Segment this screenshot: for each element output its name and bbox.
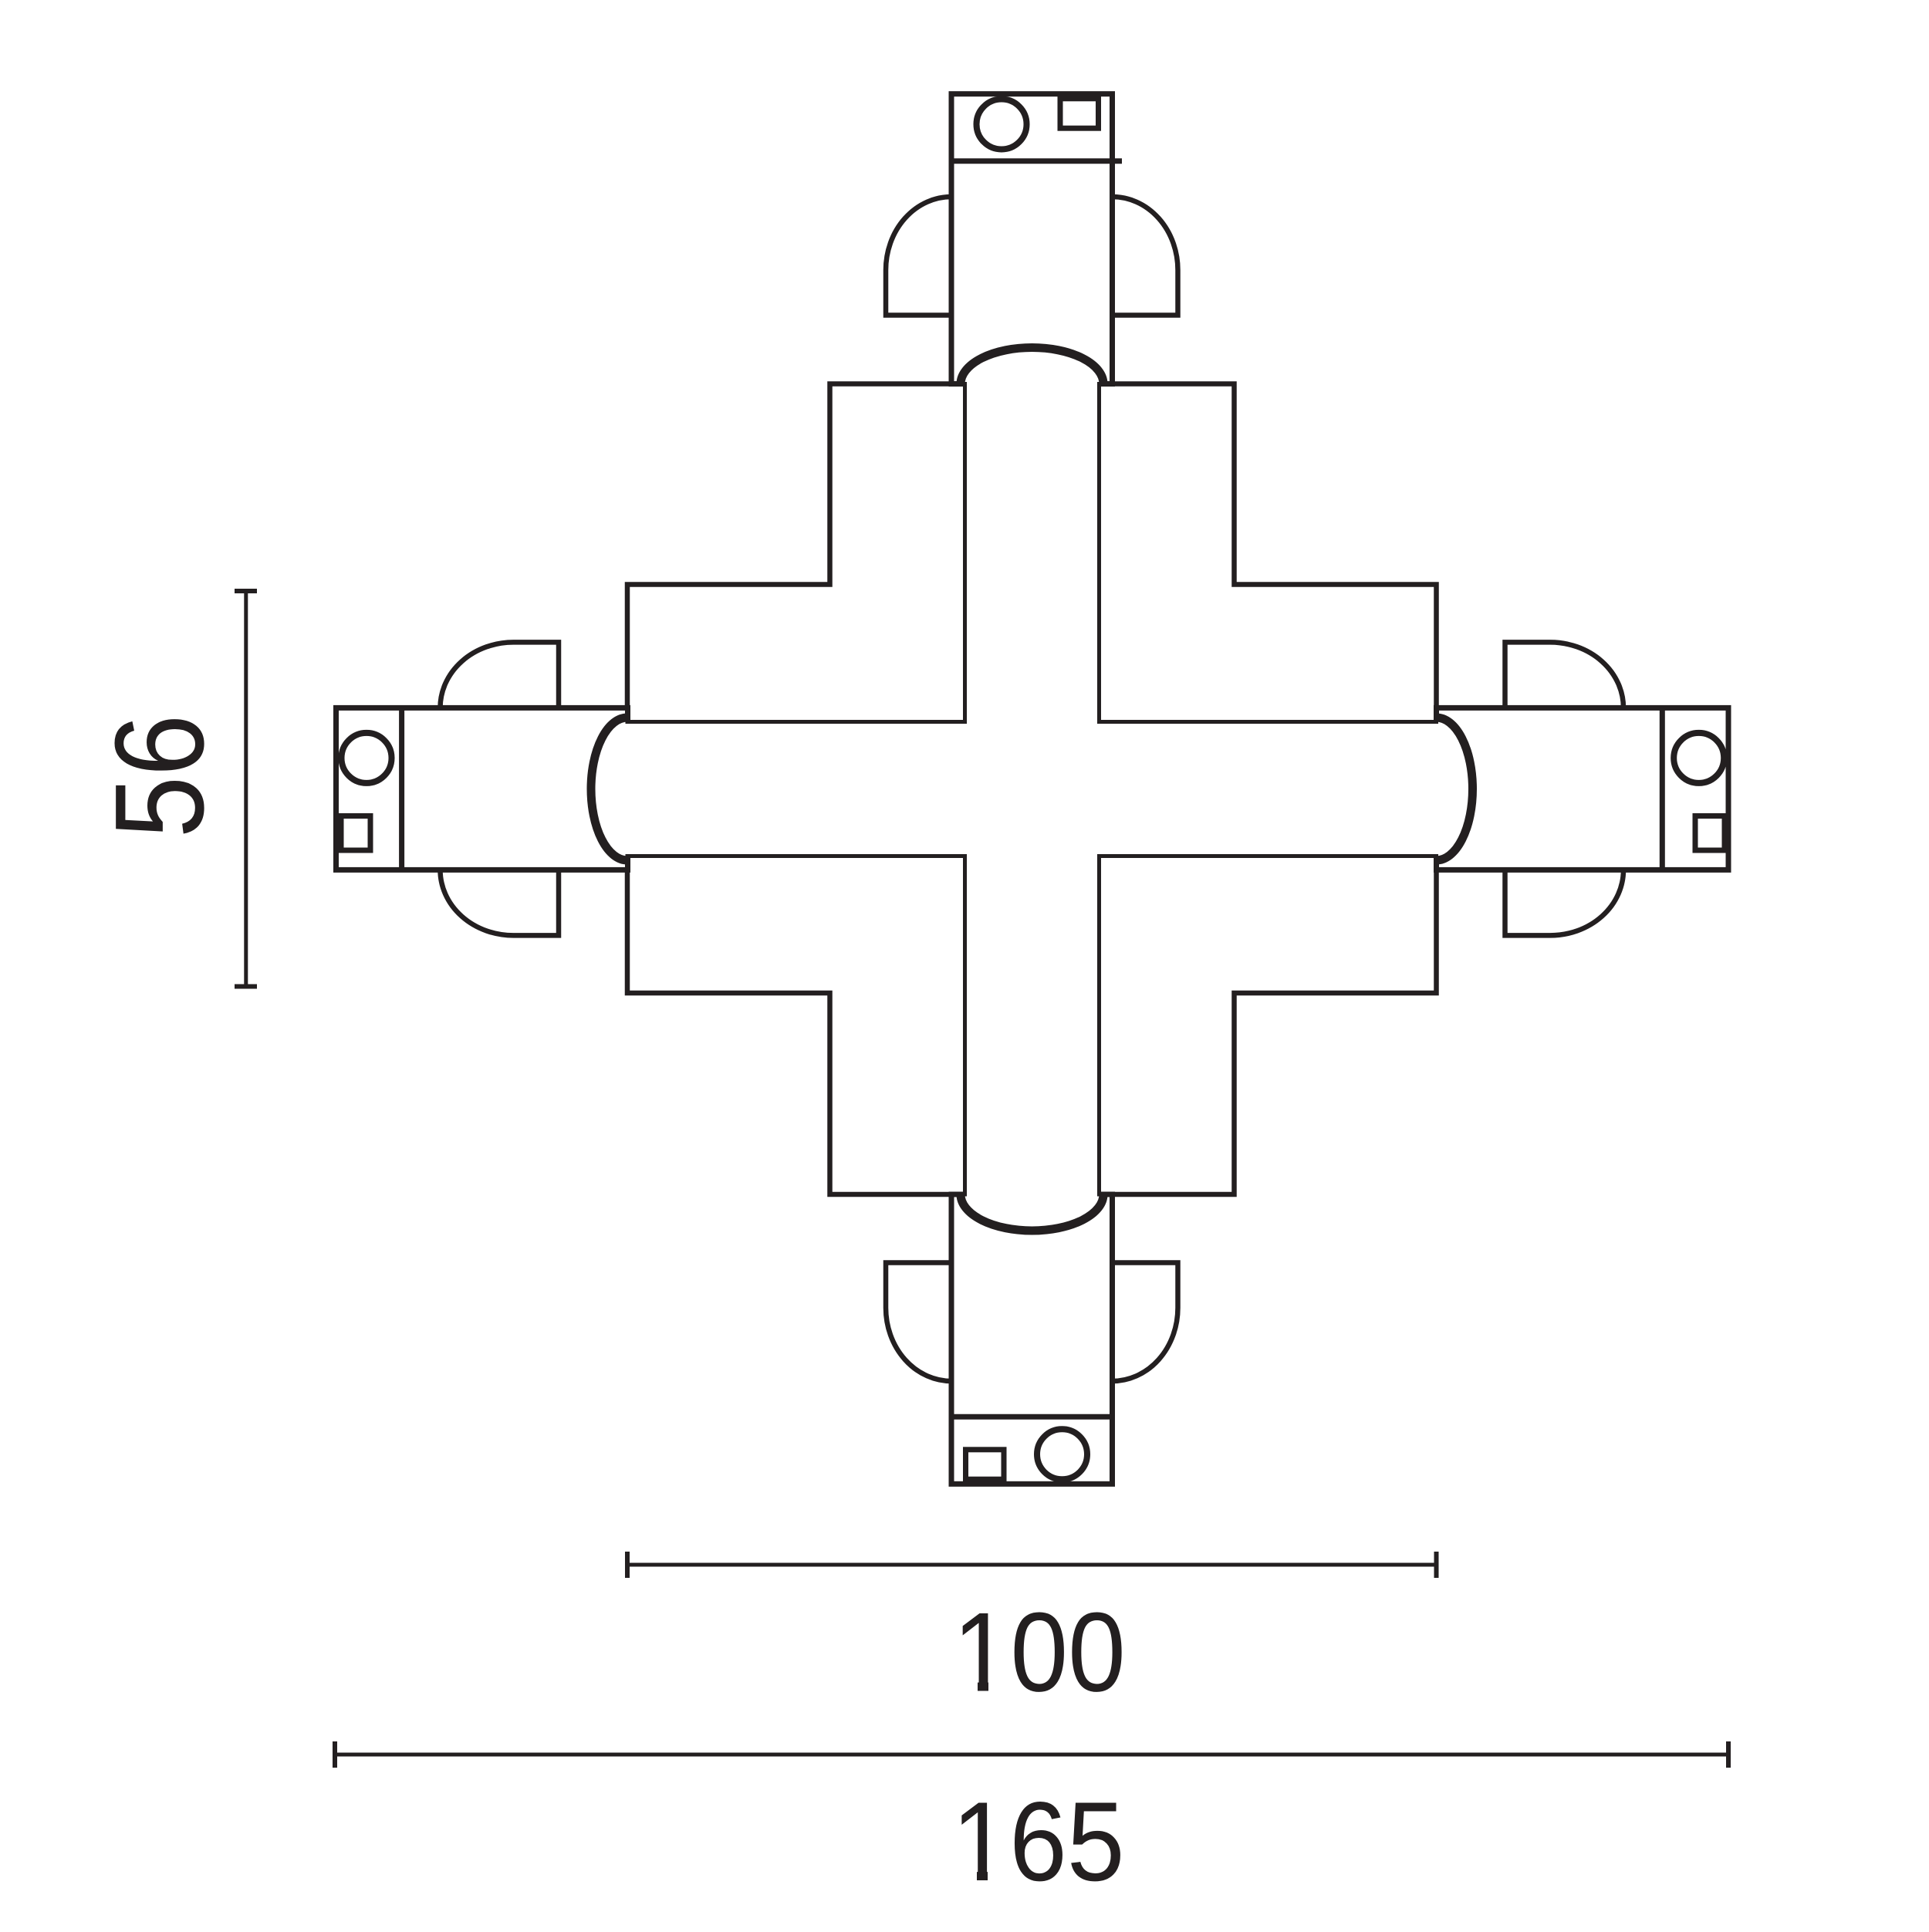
svg-text:165: 165 bbox=[951, 1778, 1124, 1904]
svg-text:56: 56 bbox=[88, 714, 230, 839]
svg-text:100: 100 bbox=[953, 1589, 1126, 1714]
